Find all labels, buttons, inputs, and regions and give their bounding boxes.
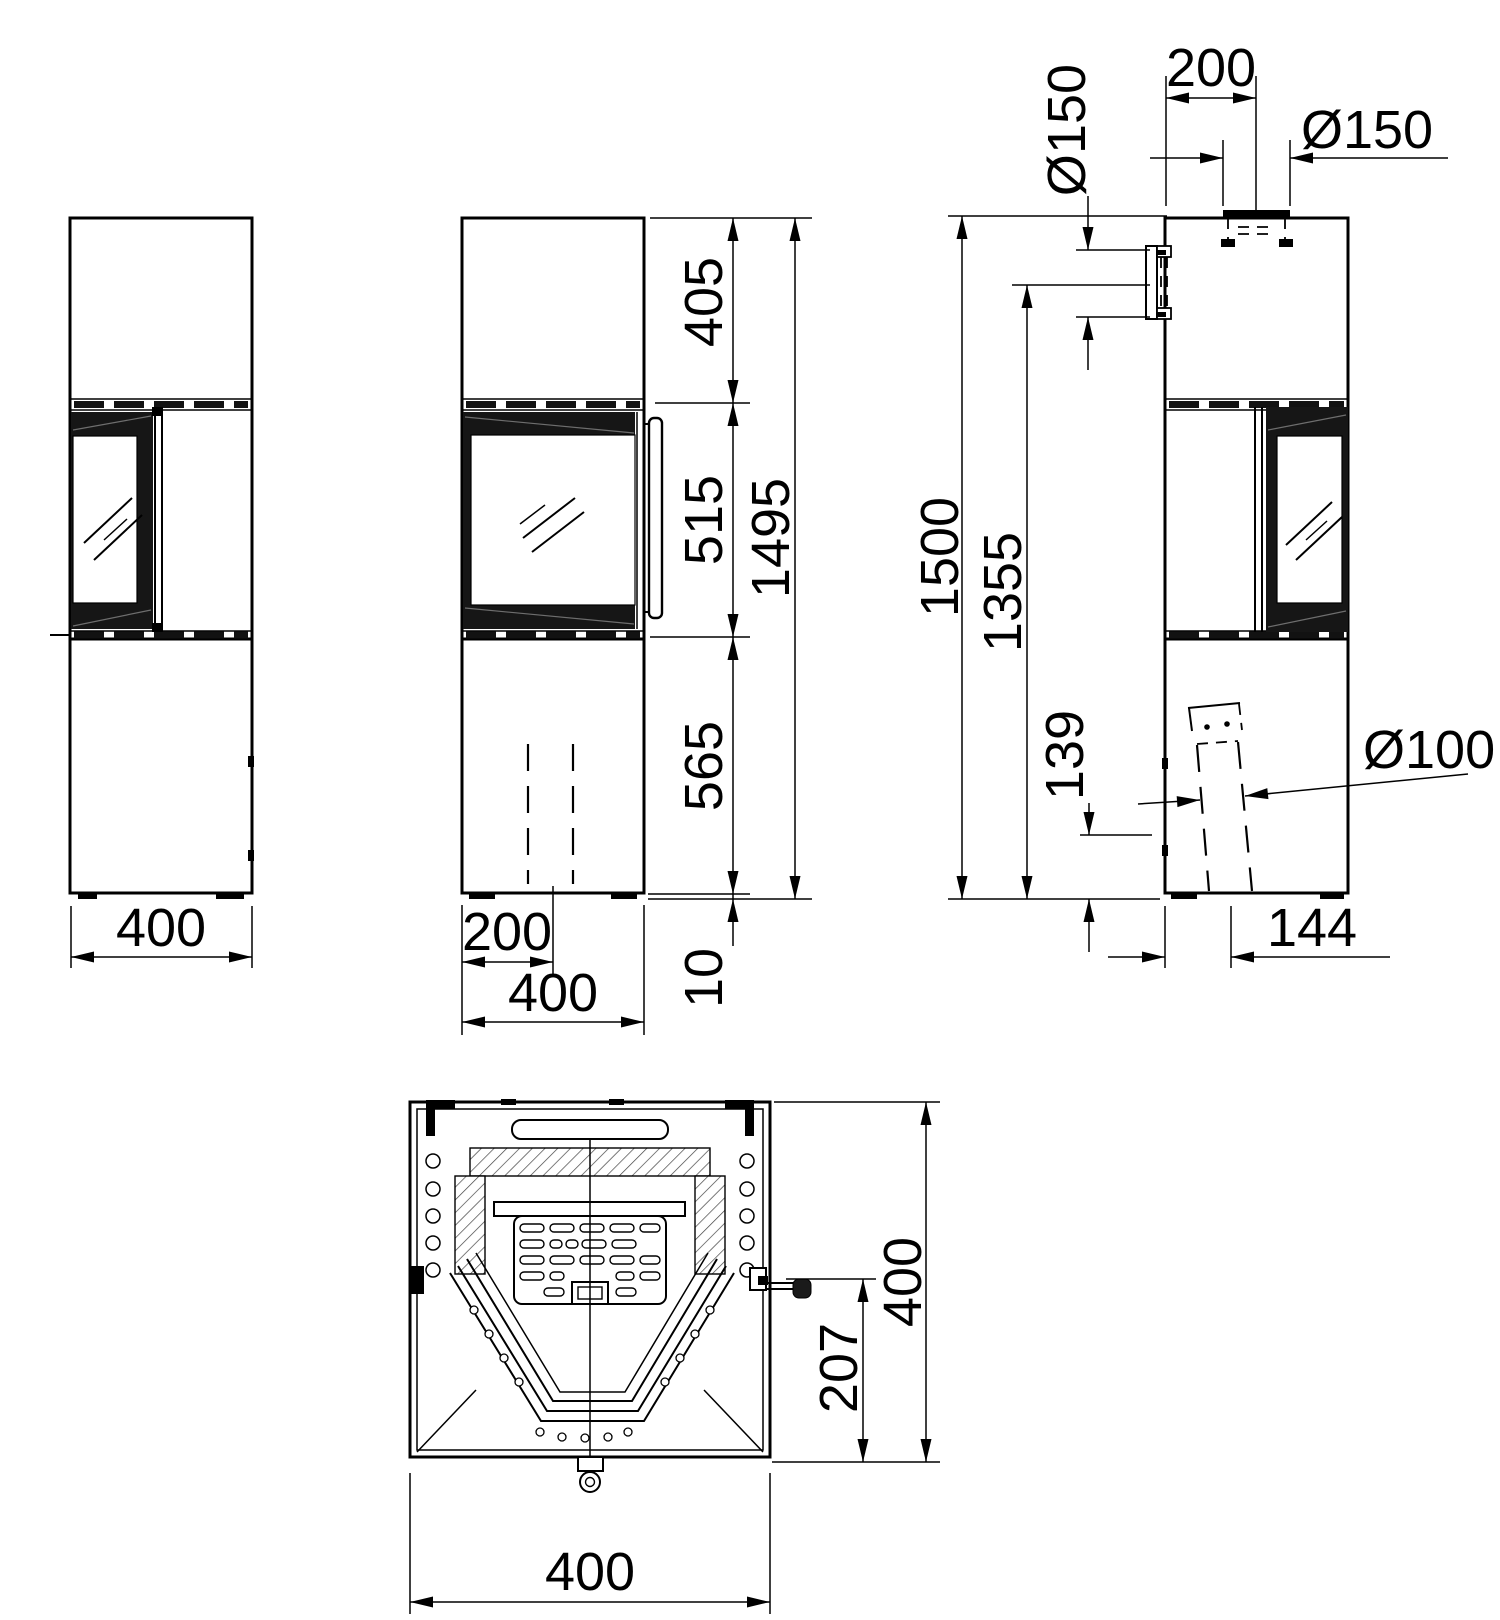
rear-convection-slot [512,1120,668,1139]
dim-label: Ø150 [1301,100,1433,160]
view-side-left: 400 [50,218,254,968]
dim-left-width: 400 [71,898,252,968]
glass-door-side [1255,407,1348,632]
door-handle [649,418,662,618]
dim-label: 200 [462,902,552,962]
dim-label: 400 [873,1237,933,1327]
view-plan-section: 400 207 400 [410,1099,940,1614]
handle-knob [793,1279,811,1298]
dim-label: 10 [674,948,734,1008]
door-hinge-plan [411,1266,424,1294]
dim-label: 400 [508,963,598,1023]
dim-intake-height: 139 [1035,710,1152,952]
foot [216,893,244,899]
dim-label: Ø100 [1363,720,1495,780]
firebrick-right [695,1176,725,1274]
door-hinge-bottom [152,623,163,632]
glass-door-front [463,412,662,629]
stove-dimension-drawing: 400 [0,0,1500,1620]
glass-door-side [71,407,163,632]
dim-label: 200 [1166,38,1256,98]
dim-plan-width: 400 [410,1473,770,1614]
rear-flue-outlet [1146,246,1171,319]
dim-label: 405 [674,257,734,347]
dim-label: 400 [545,1542,635,1602]
foot [611,893,637,899]
dim-top-flue-diameter: Ø150 [1150,100,1448,206]
door-glass [471,435,635,605]
dim-label: 515 [674,475,734,565]
view-front: 200 400 405 515 565 [462,218,812,1035]
door-glass [1277,436,1342,603]
dim-label: 1355 [973,532,1033,652]
dim-rear-flue-diameter: Ø150 [1037,64,1150,370]
dim-label: 207 [809,1323,869,1413]
foot [469,893,495,899]
dim-label: 400 [116,898,206,958]
door-hinge-top [152,407,163,416]
dim-label: 565 [674,721,734,811]
foot [1171,893,1197,899]
technical-drawing-canvas: 400 [0,0,1500,1620]
view-side-right: 200 Ø150 Ø150 1500 [910,38,1495,968]
dim-label: 1495 [741,478,801,598]
dim-front-heights: 405 515 565 10 1495 [648,218,812,1008]
dim-plan-handle: 207 [786,1279,876,1462]
dim-flue-offset: 200 [1166,38,1256,211]
dim-label: Ø150 [1037,64,1097,196]
foot [78,893,97,899]
dim-label: 139 [1035,710,1095,800]
dim-label: 1500 [910,497,970,617]
air-stub [578,1457,603,1492]
dim-intake-offset: 144 [1108,898,1390,968]
dim-label: 144 [1267,898,1357,958]
